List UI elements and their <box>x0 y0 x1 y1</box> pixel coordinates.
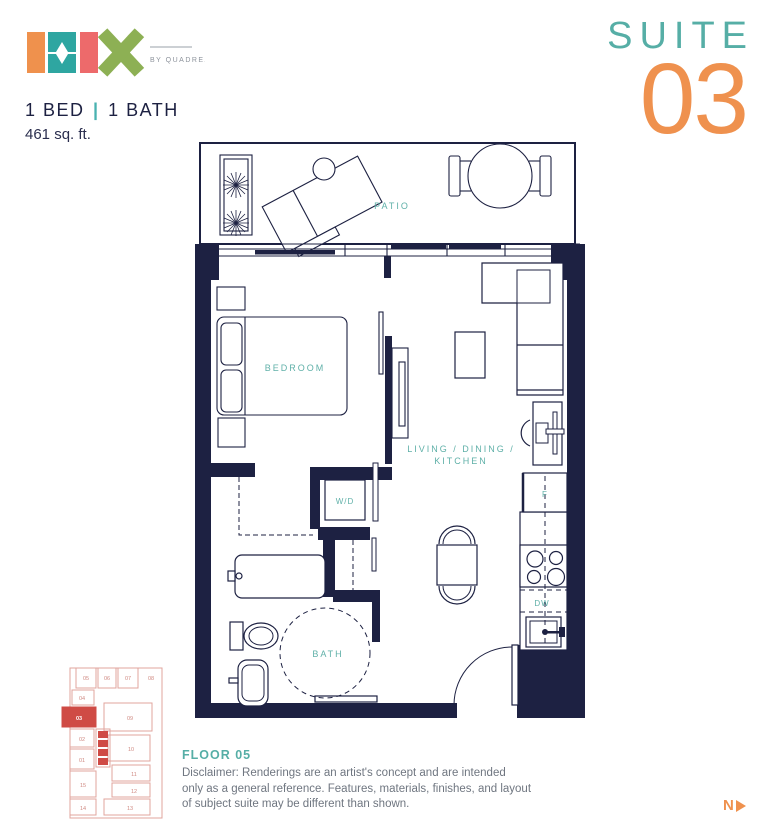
area-label: 461 sq. ft. <box>25 126 91 143</box>
logo-m-top <box>48 32 76 52</box>
dining-table <box>437 545 477 585</box>
disclaimer-text: Disclaimer: Renderings are an artist's c… <box>182 766 531 813</box>
bath-label: BATH <box>312 649 343 659</box>
living-label-line2: KITCHEN <box>434 456 488 466</box>
pillow <box>221 370 242 412</box>
planter-plants-icon <box>223 172 249 236</box>
living-furniture <box>455 263 564 465</box>
logo-bar-orange <box>27 32 45 73</box>
keyplan-unit-15: 15 <box>80 783 86 789</box>
north-label: N <box>723 797 735 814</box>
fridge-label: F <box>542 490 548 499</box>
toilet-tank <box>230 622 243 650</box>
byline-text: BY QUADREAL <box>150 57 205 64</box>
entry-door <box>454 645 518 705</box>
sliding-door-panel <box>379 312 383 374</box>
bed-bath-label: 1 BED | 1 BATH <box>25 100 179 121</box>
disclaimer-line: of subject suite may be different than s… <box>182 797 531 813</box>
suite-number: 03 <box>607 58 747 140</box>
keyplan-unit-01: 01 <box>79 758 85 764</box>
keyplan-unit-09: 09 <box>127 716 133 722</box>
nightstand-top <box>217 287 245 310</box>
keyplan-unit-05: 05 <box>83 676 89 682</box>
beds-label: 1 BED <box>25 100 85 120</box>
sink-faucet-icon <box>229 678 238 683</box>
kitchen-fixtures <box>520 473 567 650</box>
keyplan-unit-11: 11 <box>131 772 137 778</box>
keyplan-unit-07: 07 <box>125 676 131 682</box>
patio-side-table <box>313 158 335 180</box>
baths-label: 1 BATH <box>108 100 179 120</box>
keyplan-unit-03: 03 <box>76 716 82 722</box>
key-plan: 05 06 07 08 04 03 02 01 09 10 15 11 12 1… <box>58 663 170 831</box>
nightstand-bottom <box>218 418 245 447</box>
door-leaf <box>512 645 518 705</box>
bath-door-leaf <box>315 696 377 702</box>
floor-label: FLOOR 05 <box>182 748 251 762</box>
floor-plan: PATIO <box>195 140 585 735</box>
burner-icon <box>548 569 565 586</box>
logo-m-bottom <box>48 54 76 73</box>
bathtub <box>235 555 325 598</box>
patio-dining-set <box>449 144 551 208</box>
logo-x-green <box>98 28 144 76</box>
keyplan-unit-13: 13 <box>127 806 133 812</box>
burner-icon <box>550 552 563 565</box>
north-arrow-icon <box>736 800 746 812</box>
burner-icon <box>528 571 541 584</box>
keyplan-unit-14: 14 <box>80 806 86 812</box>
dishwasher-label: DW <box>534 599 549 608</box>
keyplan-unit-06: 06 <box>104 676 110 682</box>
pillow <box>221 323 242 365</box>
closet-dashed-line <box>239 477 313 535</box>
dining-set <box>437 526 477 604</box>
washer-dryer-label: W/D <box>336 497 355 506</box>
keyplan-unit-04: 04 <box>79 696 85 702</box>
keyplan-unit-08: 08 <box>148 676 154 682</box>
hallway-doors <box>372 463 378 571</box>
bath-fixtures <box>228 555 377 706</box>
mix-logo: BY QUADREAL <box>25 26 205 86</box>
floorplan-sheet: BY QUADREAL 1 BED | 1 BATH 461 sq. ft. S… <box>0 0 780 837</box>
dining-chair <box>439 586 475 604</box>
patio-lounger <box>262 156 386 261</box>
keyplan-unit-labels: 05 06 07 08 04 03 02 01 09 10 15 11 12 1… <box>76 676 154 812</box>
tub-faucet-icon <box>228 571 235 581</box>
north-indicator: N <box>723 797 746 814</box>
disclaimer-line: Disclaimer: Renderings are an artist's c… <box>182 766 531 782</box>
keyplan-core-elevators <box>98 731 108 765</box>
door-swing-arc <box>454 647 512 705</box>
patio-label: PATIO <box>374 201 410 211</box>
keyplan-unit-02: 02 <box>79 737 85 743</box>
logo-bar-pink <box>80 32 98 73</box>
dining-chair <box>439 526 475 544</box>
disclaimer-line: only as a general reference. Features, m… <box>182 782 531 798</box>
bedroom-label: BEDROOM <box>265 363 326 373</box>
living-label-line1: LIVING / DINING / <box>407 444 515 454</box>
keyplan-unit-10: 10 <box>128 747 134 753</box>
burner-icon <box>527 551 543 567</box>
keyplan-outline <box>70 668 162 818</box>
suite-title: SUITE 03 <box>607 16 747 140</box>
desk-chair <box>521 420 530 446</box>
bed-bath-separator: | <box>91 100 102 120</box>
keyplan-unit-12: 12 <box>131 789 137 795</box>
coffee-table <box>455 332 485 378</box>
